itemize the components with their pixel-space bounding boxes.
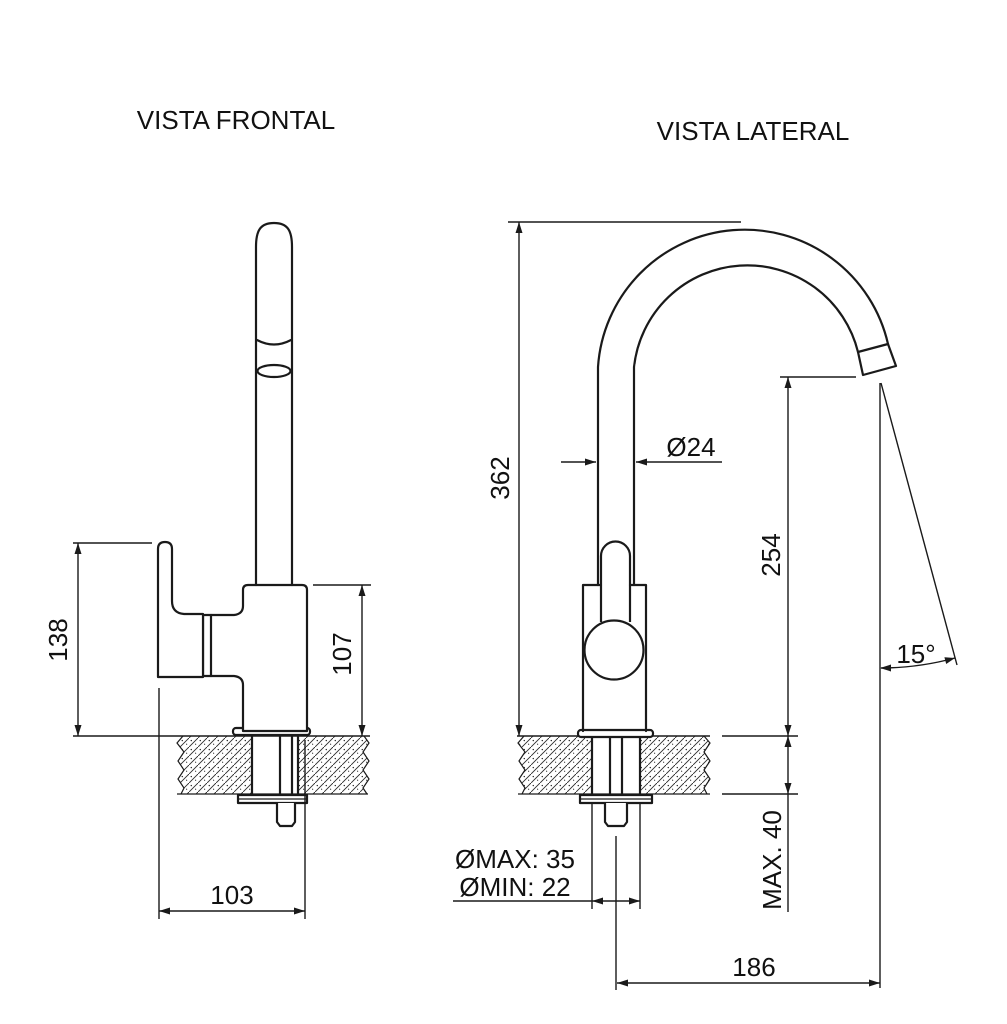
side-hole-min-label: ØMIN: 22	[459, 872, 570, 902]
side-view: 362 Ø24 254 MAX. 40 ØMAX: 35 ØMIN: 22 15…	[453, 222, 957, 990]
side-base-flange	[578, 730, 653, 737]
front-dim138-label: 138	[43, 618, 73, 661]
side-threaded-tail	[605, 803, 627, 826]
front-aerator-ellipse	[258, 365, 291, 377]
front-body	[203, 585, 307, 731]
front-view-title: VISTA FRONTAL	[137, 105, 335, 135]
side-hole-arrow-right	[629, 898, 640, 905]
front-spout-tube	[256, 223, 292, 585]
front-dim103-label: 103	[210, 880, 253, 910]
side-spout-tip-aerator	[858, 344, 896, 375]
side-hole-arrow-left	[592, 898, 603, 905]
side-hole-max-label: ØMAX: 35	[455, 844, 575, 874]
technical-drawing-canvas: VISTA FRONTAL VISTA LATERAL 1	[0, 0, 1007, 1024]
side-counter-right	[640, 736, 710, 794]
side-angle-arrow-right	[944, 657, 955, 664]
side-dim24-label: Ø24	[666, 432, 715, 462]
front-threaded-tail	[277, 803, 295, 826]
faucet-dimension-drawing: VISTA FRONTAL VISTA LATERAL 1	[0, 0, 1007, 1024]
side-counter-left	[518, 736, 592, 794]
front-view: 138 107 103	[43, 223, 371, 919]
side-angle-slant-line	[881, 383, 957, 665]
front-spout-collar-arc	[257, 340, 291, 345]
front-counter-right	[298, 736, 369, 794]
front-counter-left	[177, 736, 252, 794]
side-view-title: VISTA LATERAL	[657, 116, 850, 146]
side-dim362-label: 362	[485, 456, 515, 499]
side-spout-outer	[598, 230, 888, 585]
side-spout-inner	[634, 265, 858, 585]
front-handle-lever	[158, 542, 203, 677]
side-handle-lever	[601, 542, 630, 623]
side-dim254-label: 254	[756, 533, 786, 576]
side-swivel-ball	[585, 621, 644, 680]
side-dim186-label: 186	[732, 952, 775, 982]
side-dimmax40-label: MAX. 40	[757, 810, 787, 910]
front-dim107-label: 107	[327, 632, 357, 675]
side-angle-arrow-left	[880, 665, 891, 672]
side-angle-label: 15°	[896, 639, 935, 669]
